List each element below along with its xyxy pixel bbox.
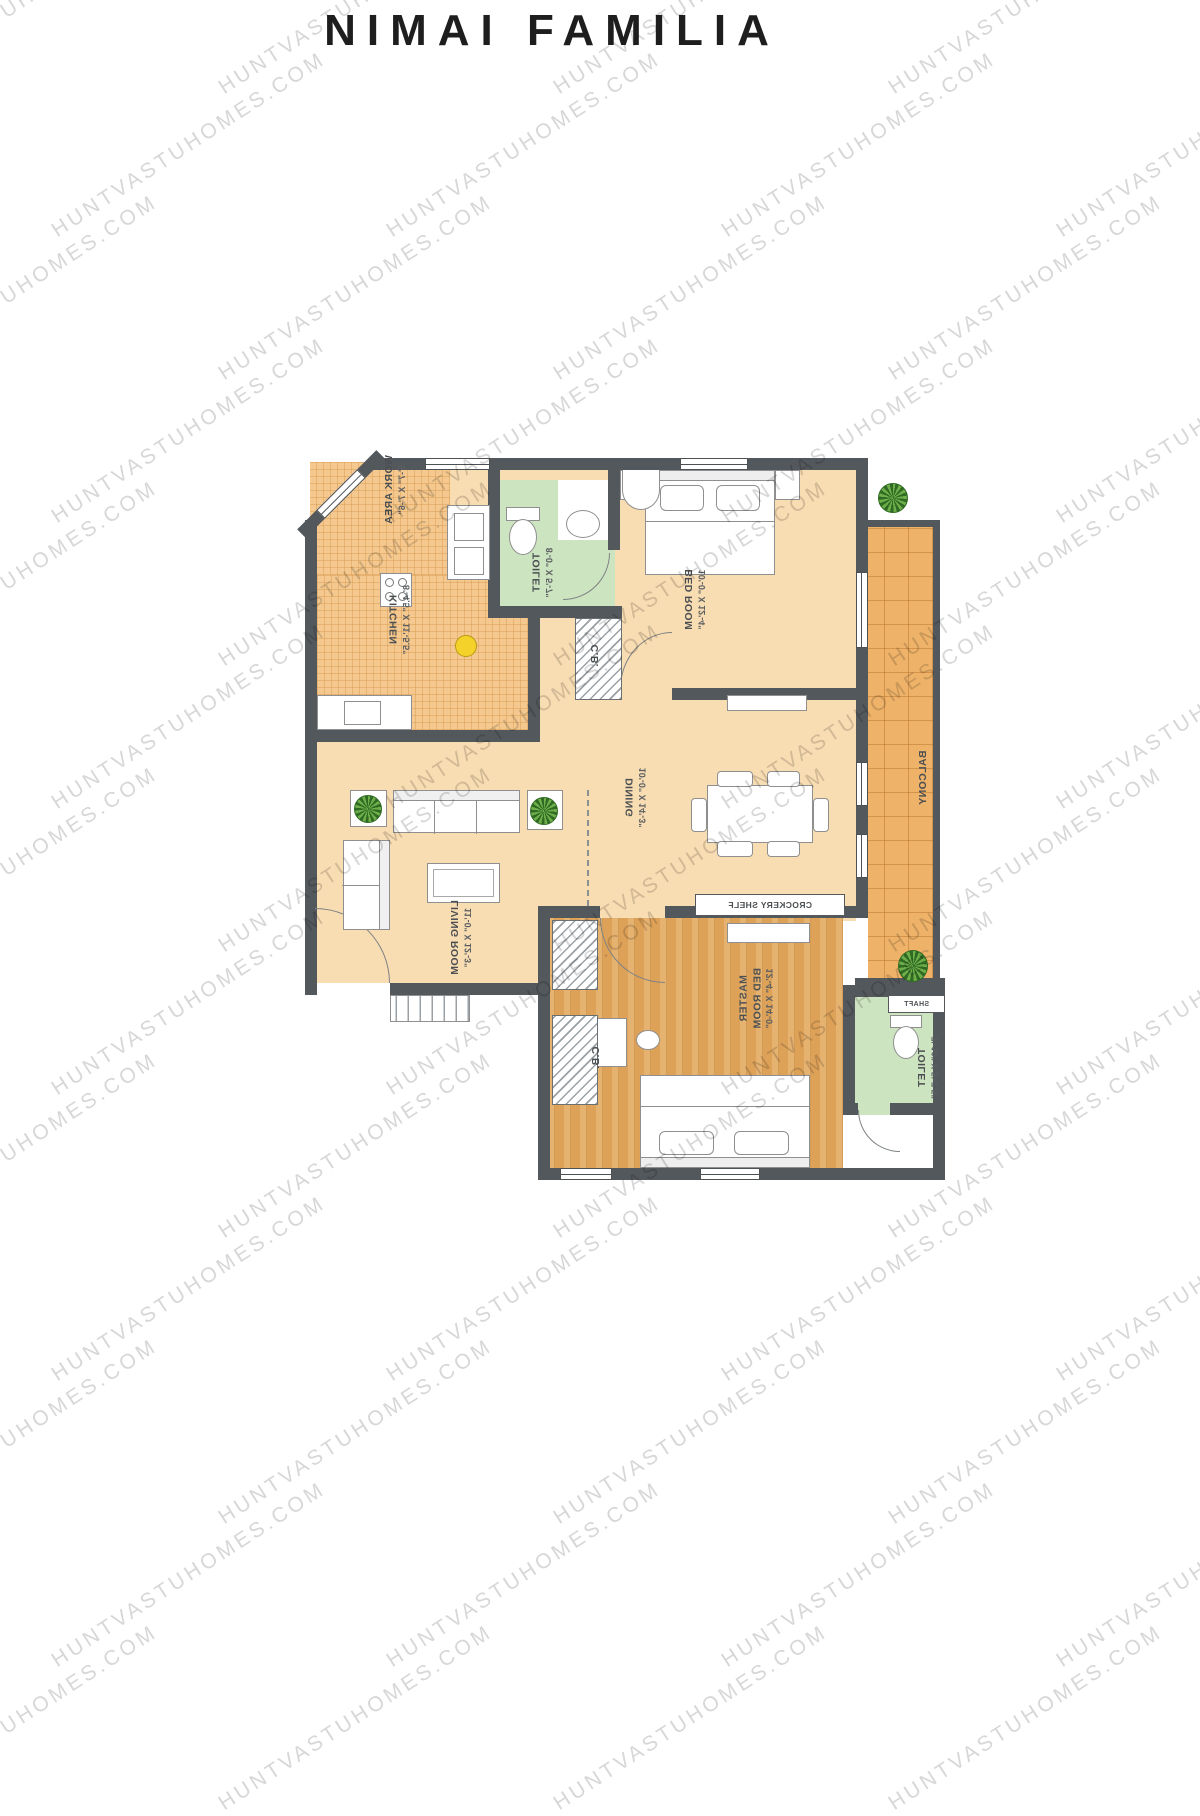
watermark-text: HUNTVASTUHOMES.COM [1052, 905, 1200, 1100]
window-bedroom-balcony [856, 572, 868, 648]
pillow [716, 485, 760, 511]
watermark-text: HUNTVASTUHOMES.COM [884, 190, 1167, 385]
watermark-text: HUNTVASTUHOMES.COM [1052, 619, 1200, 814]
watermark-text: HUNTVASTUHOMES.COM [47, 1191, 330, 1386]
wall-toilet-master-bottom-b [843, 1103, 858, 1115]
label-bedroom: BED ROOM10'-0" X 12'-4" [661, 570, 731, 630]
pillow [660, 485, 704, 511]
watermark-text: HUNTVASTUHOMES.COM [47, 619, 330, 814]
watermark-text: HUNTVASTUHOMES.COM [884, 1334, 1167, 1529]
master-bed [640, 1075, 810, 1168]
watermark-text: HUNTVASTUHOMES.COM [214, 1334, 497, 1529]
watermark-text: HUNTVASTUHOMES.COM [1052, 1477, 1200, 1672]
dining-chair [767, 841, 800, 857]
watermark-text: HUNTVASTUHOMES.COM [0, 190, 162, 385]
door-arc-toilet-master [858, 1110, 900, 1152]
page-title: NIMAI FAMILIA [0, 6, 1104, 56]
dining-chair [717, 841, 753, 857]
dining-chair [691, 798, 707, 832]
plant-icon [898, 950, 928, 982]
window-master-1 [560, 1168, 612, 1180]
wall-balcony-outer-top [868, 520, 940, 527]
gas-cylinder-icon [455, 635, 477, 657]
plant-icon [354, 795, 382, 823]
dresser [727, 923, 810, 943]
nightstand [775, 470, 800, 500]
label-master-bedroom: MASTER BED ROOM12'-4" X 14'-0" [717, 968, 797, 1028]
sofa-two-seater [343, 840, 390, 930]
wall-kitchen-side [528, 618, 540, 742]
label-balcony: BALCONY [911, 743, 937, 813]
watermark-text: HUNTVASTUHOMES.COM [47, 47, 330, 242]
wall-toilet-top-bottom [495, 606, 622, 618]
window-bedroom [680, 458, 748, 470]
watermark-text: HUNTVASTUHOMES.COM [47, 333, 330, 528]
wardrobe-niche [622, 470, 660, 510]
plant-icon [878, 483, 908, 513]
label-shaft: SHAFT [888, 995, 945, 1013]
sink [454, 513, 484, 541]
dining-chair [717, 771, 753, 787]
living-dining-divider [587, 790, 589, 906]
tv-cabinet [727, 695, 807, 711]
dining-chair [767, 771, 800, 787]
entrance-step [390, 995, 470, 1022]
label-toilet-top: TOILET8'-0" X 5'-7" [513, 543, 573, 603]
label-crockery-shelf: CROCKERY SHELF [695, 894, 845, 916]
dining-chair [813, 798, 829, 832]
watermark-text: HUNTVASTUHOMES.COM [47, 905, 330, 1100]
watermark-text: HUNTVASTUHOMES.COM [1052, 333, 1200, 528]
watermark-text: HUNTVASTUHOMES.COM [0, 1620, 162, 1815]
watermark-text: HUNTVASTUHOMES.COM [214, 190, 497, 385]
watermark-text: HUNTVASTUHOMES.COM [0, 762, 162, 957]
wall-lower-block-side [538, 918, 550, 1180]
watermark-text: HUNTVASTUHOMES.COM [214, 1620, 497, 1815]
plant-stand [350, 790, 387, 827]
window-dining-balcony-1 [856, 762, 868, 806]
cupboard-hatch [552, 920, 598, 990]
wall-toilet-master-left [843, 985, 855, 1115]
fridge [344, 701, 381, 725]
sofa-three-seater [393, 790, 520, 833]
stool [636, 1030, 660, 1050]
wall-toilet-top-right [608, 458, 620, 550]
watermark-text: HUNTVASTUHOMES.COM [382, 47, 665, 242]
label-cb-top: C.B. [581, 641, 611, 671]
watermark-text: HUNTVASTUHOMES.COM [717, 1191, 1000, 1386]
label-cb-master: C.B. [579, 1040, 615, 1076]
work-counter [447, 505, 490, 580]
watermark-text: HUNTVASTUHOMES.COM [0, 1334, 162, 1529]
double-bed [645, 470, 775, 575]
window-dining-balcony-2 [856, 834, 868, 878]
watermark-text: HUNTVASTUHOMES.COM [549, 1620, 832, 1815]
coffee-table [427, 863, 500, 903]
plant-stand [527, 790, 563, 830]
watermark-text: HUNTVASTUHOMES.COM [549, 1334, 832, 1529]
wall-master-top-b [538, 906, 600, 918]
label-living: LIVING ROOM11'-0" X 12'-3" [427, 908, 497, 968]
plant-icon [530, 797, 558, 825]
watermark-text: HUNTVASTUHOMES.COM [717, 1477, 1000, 1672]
watermark-text: HUNTVASTUHOMES.COM [0, 476, 162, 671]
watermark-text: HUNTVASTUHOMES.COM [884, 1620, 1167, 1815]
washbasin-icon [566, 510, 600, 538]
watermark-text: HUNTVASTUHOMES.COM [47, 1477, 330, 1672]
wall-kitchen-bottom [317, 730, 530, 742]
washing-machine [454, 547, 484, 575]
kitchen-counter [317, 695, 412, 730]
pillow [659, 1131, 714, 1155]
watermark-text: HUNTVASTUHOMES.COM [1052, 1191, 1200, 1386]
label-work-area: WORK AREA5'-7" X 7'-6" [350, 460, 440, 520]
dining-table [707, 785, 813, 843]
label-dining: DINING10'-0" X 14'-3" [601, 768, 671, 828]
watermark-text: HUNTVASTUHOMES.COM [382, 1191, 665, 1386]
wall-living-bottom [390, 983, 545, 995]
window-master-2 [700, 1168, 760, 1180]
watermark-text: HUNTVASTUHOMES.COM [1052, 47, 1200, 242]
floor-plan: WORK AREA5'-7" X 7'-6" TOILET8'-0" X 5'-… [300, 455, 945, 1185]
label-toilet-master: TOILET7'-10" X 5'-7.5" [915, 1038, 943, 1098]
watermark-text: HUNTVASTUHOMES.COM [0, 1048, 162, 1243]
label-kitchen: KITCHEN8'-4.5" X 11'-5.5" [360, 585, 440, 655]
watermark-text: HUNTVASTUHOMES.COM [717, 47, 1000, 242]
watermark-text: HUNTVASTUHOMES.COM [549, 190, 832, 385]
watermark-text: HUNTVASTUHOMES.COM [382, 1477, 665, 1672]
pillow [734, 1131, 789, 1155]
